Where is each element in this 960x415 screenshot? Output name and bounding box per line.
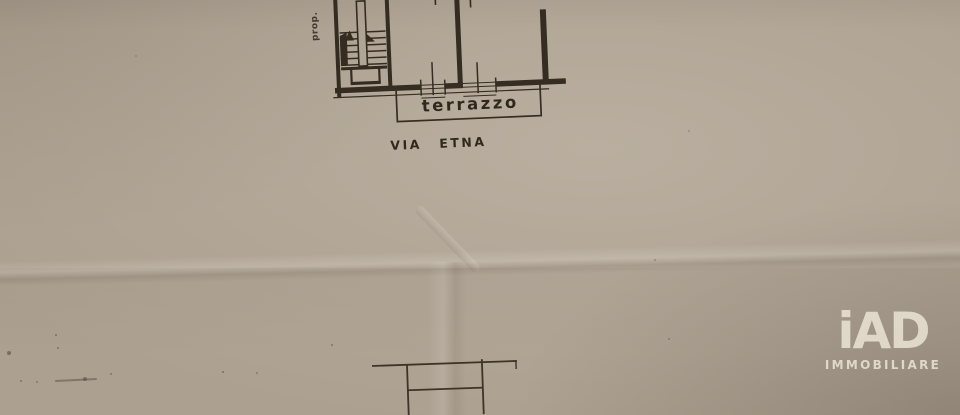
secondary-plan-fragment	[372, 358, 519, 415]
main-floor-plan: terrazzo VIA ETNA prop.	[309, 0, 569, 156]
room-partition-wall	[456, 0, 460, 85]
right-exterior-wall	[543, 9, 546, 81]
floor-plan-photo: terrazzo VIA ETNA prop. iAD IMMOBILIARE	[0, 0, 960, 415]
iad-subtitle-text: IMMOBILIARE	[820, 358, 946, 372]
rooms-walls	[329, 0, 566, 102]
iad-logo: iAD IMMOBILIARE	[820, 308, 946, 372]
terrace-label: terrazzo	[421, 93, 519, 116]
street-label-via: VIA	[390, 137, 422, 153]
prop-label: prop.	[310, 11, 321, 41]
iad-brand-text: iAD	[820, 308, 946, 354]
floor-plan-drawing: terrazzo VIA ETNA prop.	[0, 0, 960, 415]
street-label-etna: ETNA	[439, 134, 487, 151]
stairwell	[331, 0, 396, 97]
